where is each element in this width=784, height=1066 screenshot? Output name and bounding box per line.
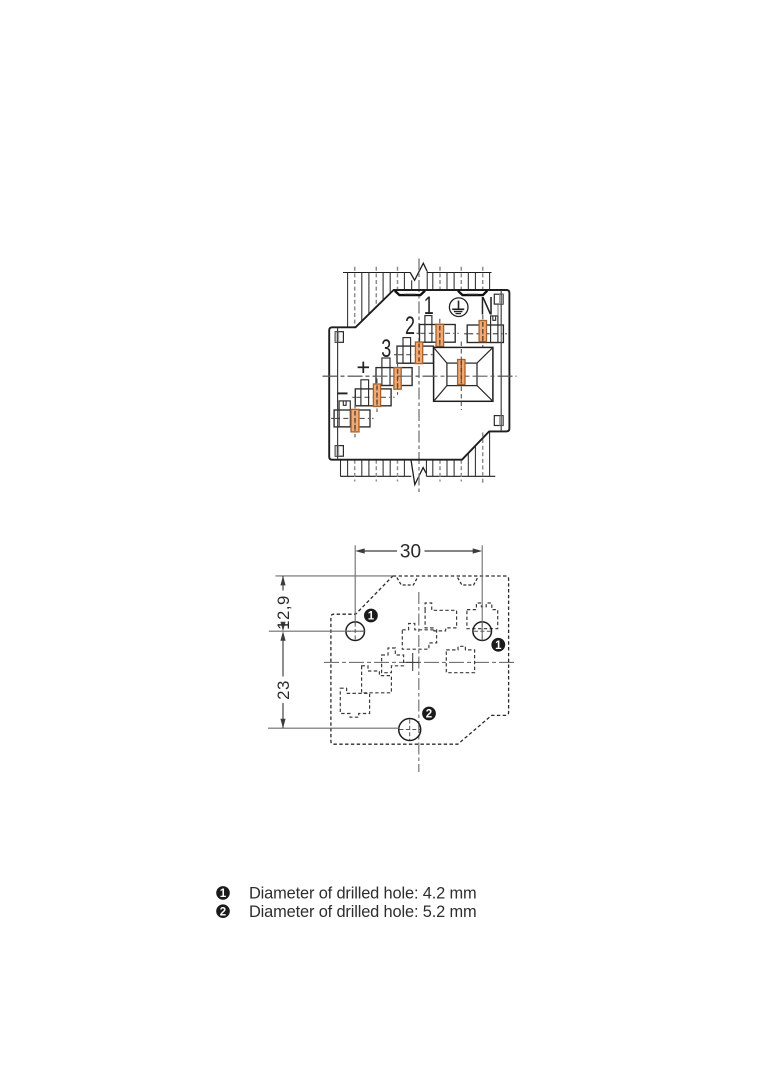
- svg-text:1: 1: [368, 611, 375, 623]
- svg-text:1: 1: [424, 291, 434, 320]
- svg-text:Diameter of drilled hole: 4.2: Diameter of drilled hole: 4.2 mm: [249, 885, 477, 903]
- svg-text:23: 23: [274, 680, 293, 700]
- svg-text:1: 1: [495, 640, 502, 652]
- svg-text:1: 1: [220, 888, 227, 900]
- svg-text:2: 2: [220, 906, 226, 918]
- svg-text:12,9: 12,9: [274, 595, 293, 630]
- svg-text:30: 30: [400, 541, 421, 562]
- svg-text:Diameter of drilled hole: 5.2: Diameter of drilled hole: 5.2 mm: [249, 903, 477, 921]
- svg-text:N: N: [480, 291, 493, 320]
- svg-text:3: 3: [381, 334, 391, 363]
- svg-text:2: 2: [405, 311, 415, 340]
- svg-text:2: 2: [426, 709, 432, 721]
